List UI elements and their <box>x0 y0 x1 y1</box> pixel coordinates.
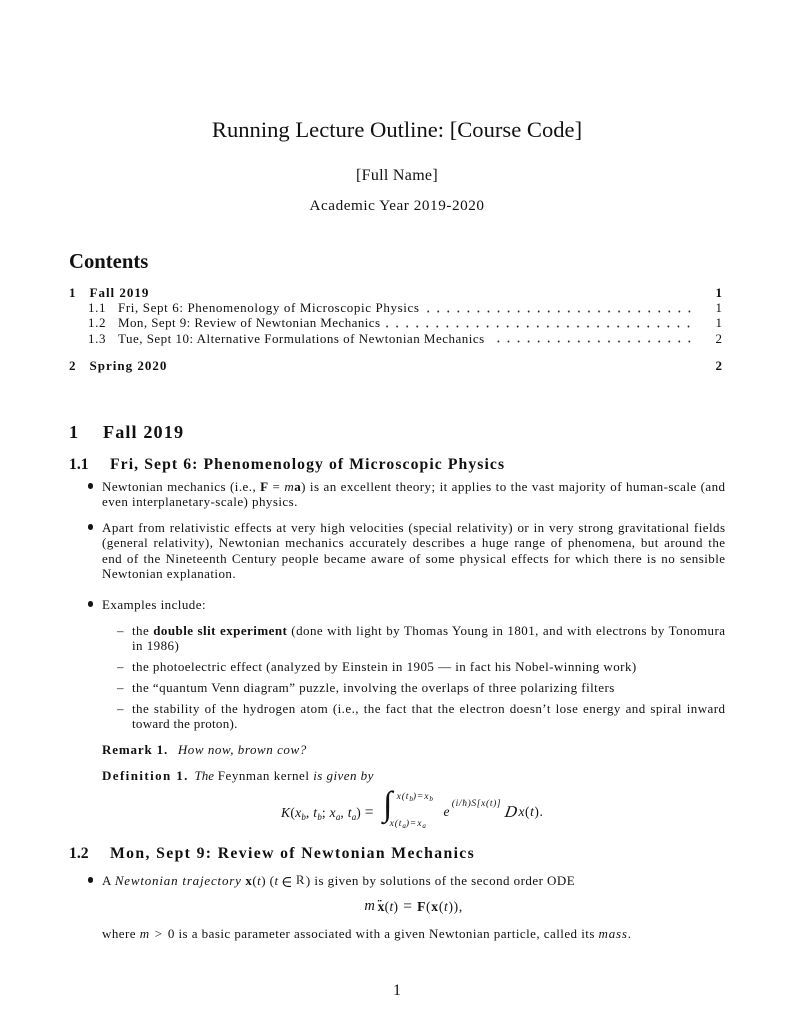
svg-text:R: R <box>296 875 305 885</box>
